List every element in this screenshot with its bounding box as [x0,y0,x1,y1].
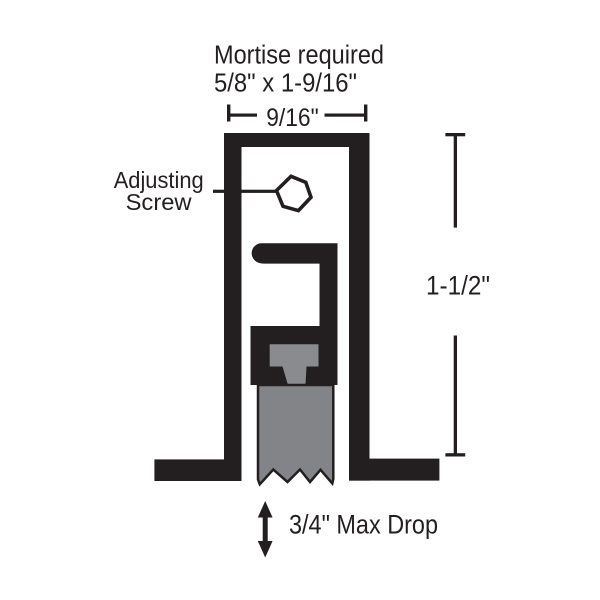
svg-text:9/16": 9/16" [266,104,319,132]
svg-text:1-1/2": 1-1/2" [426,271,490,301]
svg-text:Screw: Screw [126,189,192,215]
svg-text:Mortise required: Mortise required [214,42,384,70]
svg-text:5/8" x 1-9/16": 5/8" x 1-9/16" [214,69,357,97]
svg-text:3/4" Max Drop: 3/4" Max Drop [289,510,438,540]
